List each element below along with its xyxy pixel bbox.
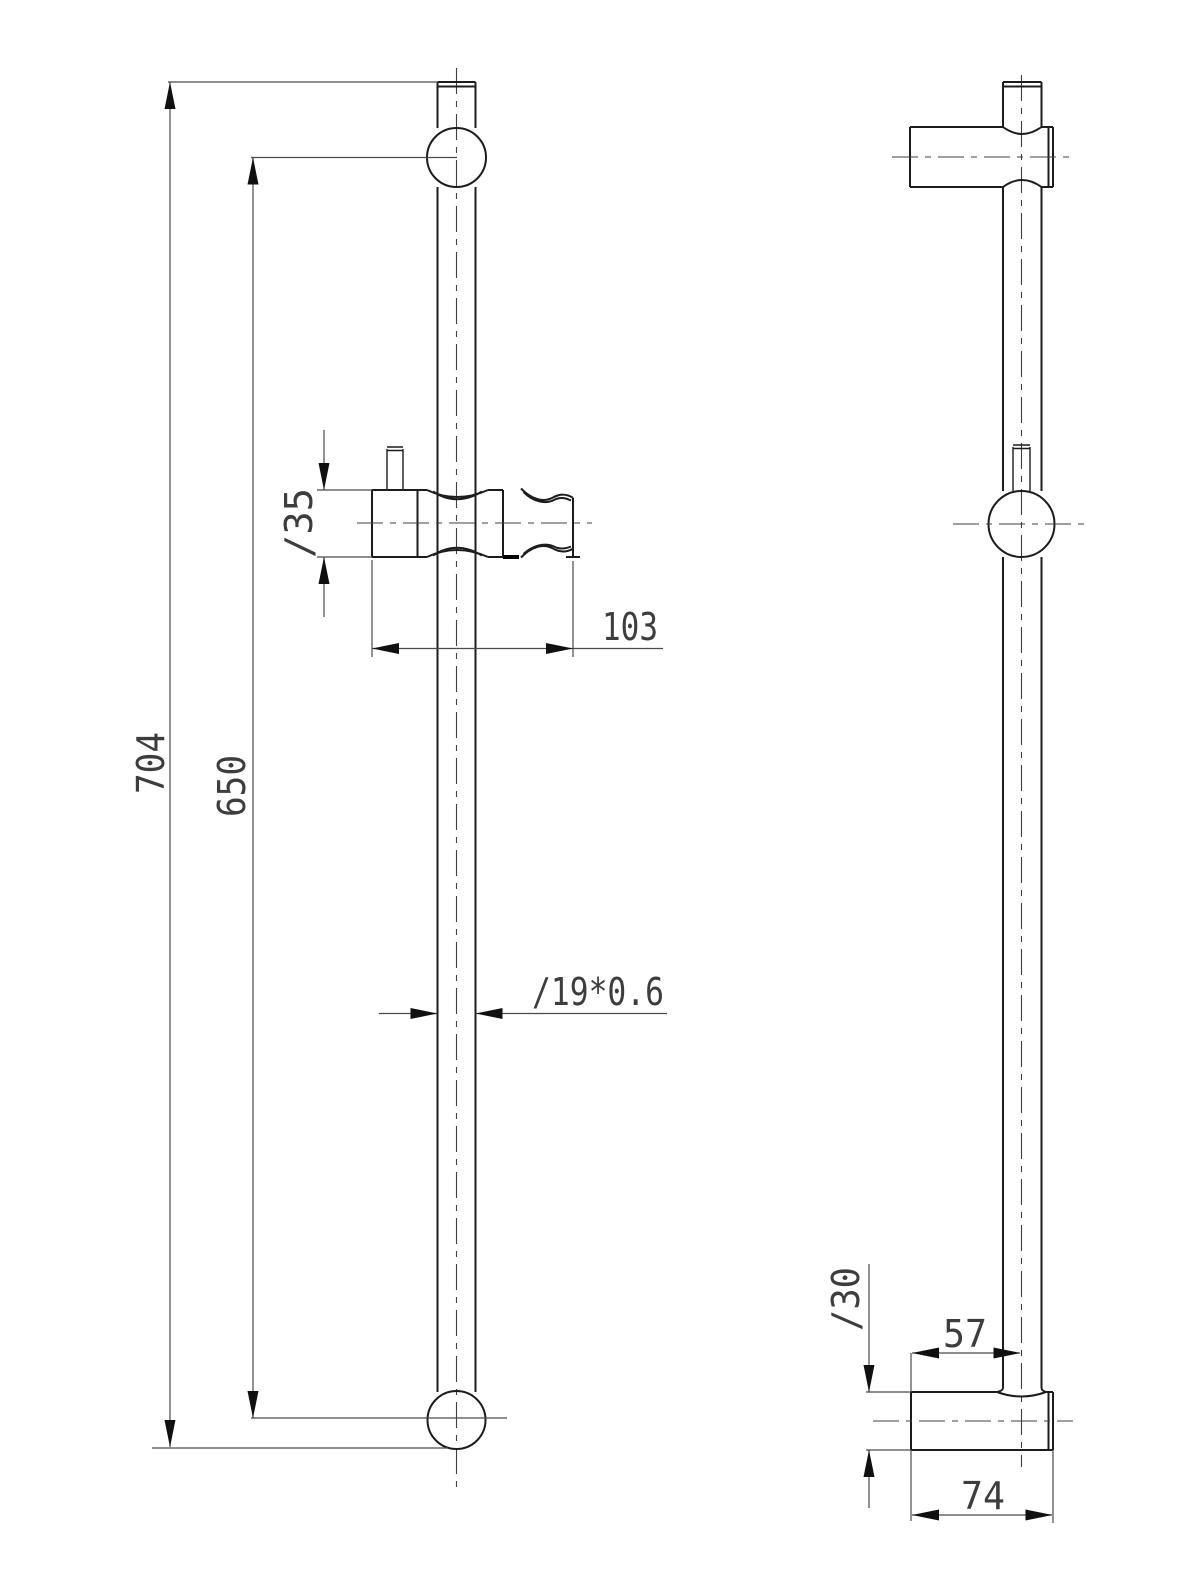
dim-text-tube-spec: ∕19*0.6: [532, 970, 664, 1014]
technical-drawing-page: 704 650 ∕35 103 ∕19*0.6: [0, 0, 1204, 1583]
side-tube-outline: [1003, 82, 1042, 1388]
dimension-tube-spec: ∕19*0.6: [379, 970, 667, 1019]
dim-text-holder-diameter: ∕35: [277, 488, 321, 558]
dim-d30-arrows: [864, 1365, 875, 1477]
side-view: ∕30 57 74: [824, 75, 1088, 1523]
dim-650-lines: [251, 158, 507, 1419]
dim-text-overall-length: 704: [129, 732, 173, 794]
dim-text-bracket-diameter: ∕30: [824, 1267, 868, 1331]
dim-text-wall-to-center: 57: [943, 1312, 987, 1356]
dimension-rail-span: 650: [210, 158, 507, 1419]
top-wall-bracket: [892, 127, 1073, 187]
dim-text-bracket-depth: 74: [961, 1474, 1005, 1518]
dimension-overall-length: 704: [129, 82, 448, 1448]
dimension-wall-to-center: 57: [912, 1312, 1021, 1359]
holder-lock-pin: [387, 447, 403, 490]
bottom-bracket-outline: [911, 1388, 1053, 1450]
dimension-holder-width: 103: [372, 560, 663, 657]
side-slider-knob: [953, 445, 1088, 557]
front-view: 704 650 ∕35 103 ∕19*0.6: [129, 68, 667, 1493]
bottom-bracket-extension-lines: [866, 1353, 1053, 1523]
dimension-bracket-diameter: ∕30: [824, 1264, 875, 1508]
dimension-bracket-depth: 74: [912, 1474, 1053, 1521]
dim-text-holder-width: 103: [602, 605, 658, 649]
slide-bar-drawing: 704 650 ∕35 103 ∕19*0.6: [0, 0, 1204, 1583]
dim-704-lines: [152, 82, 448, 1448]
dim-text-rail-span: 650: [210, 755, 254, 817]
